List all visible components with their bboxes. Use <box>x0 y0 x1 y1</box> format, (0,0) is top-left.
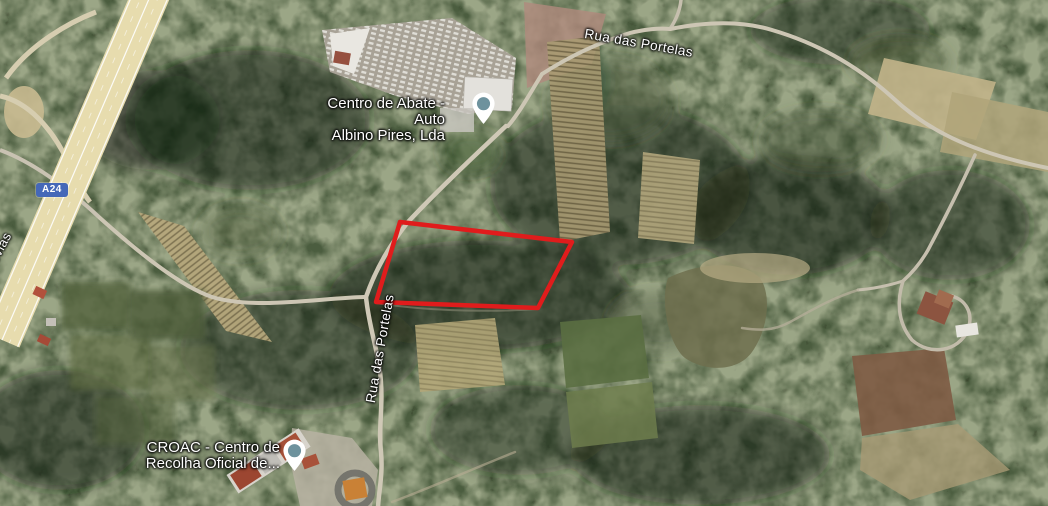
highway-shield-a24: A24 <box>36 183 68 197</box>
satellite-imagery[interactable] <box>0 0 1048 506</box>
pin-dot <box>477 97 490 110</box>
poi-pin-centro-de-abate[interactable] <box>470 91 497 126</box>
poi-name-line: Recolha Oficial de... <box>135 456 280 472</box>
poi-name-line: Albino Pires, Lda <box>300 128 445 144</box>
poi-name-line: Centro de Abate -Auto <box>300 96 445 128</box>
poi-label-centro-de-abate[interactable]: Centro de Abate -Auto Albino Pires, Lda <box>300 96 445 145</box>
pin-dot <box>288 444 301 457</box>
poi-pin-croac[interactable] <box>281 438 308 473</box>
poi-label-croac[interactable]: CROAC - Centro de Recolha Oficial de... <box>135 440 280 472</box>
satellite-map[interactable]: Rua das Portelas Rua das Portelas ovias … <box>0 0 1048 506</box>
poi-name-line: CROAC - Centro de <box>135 440 280 456</box>
